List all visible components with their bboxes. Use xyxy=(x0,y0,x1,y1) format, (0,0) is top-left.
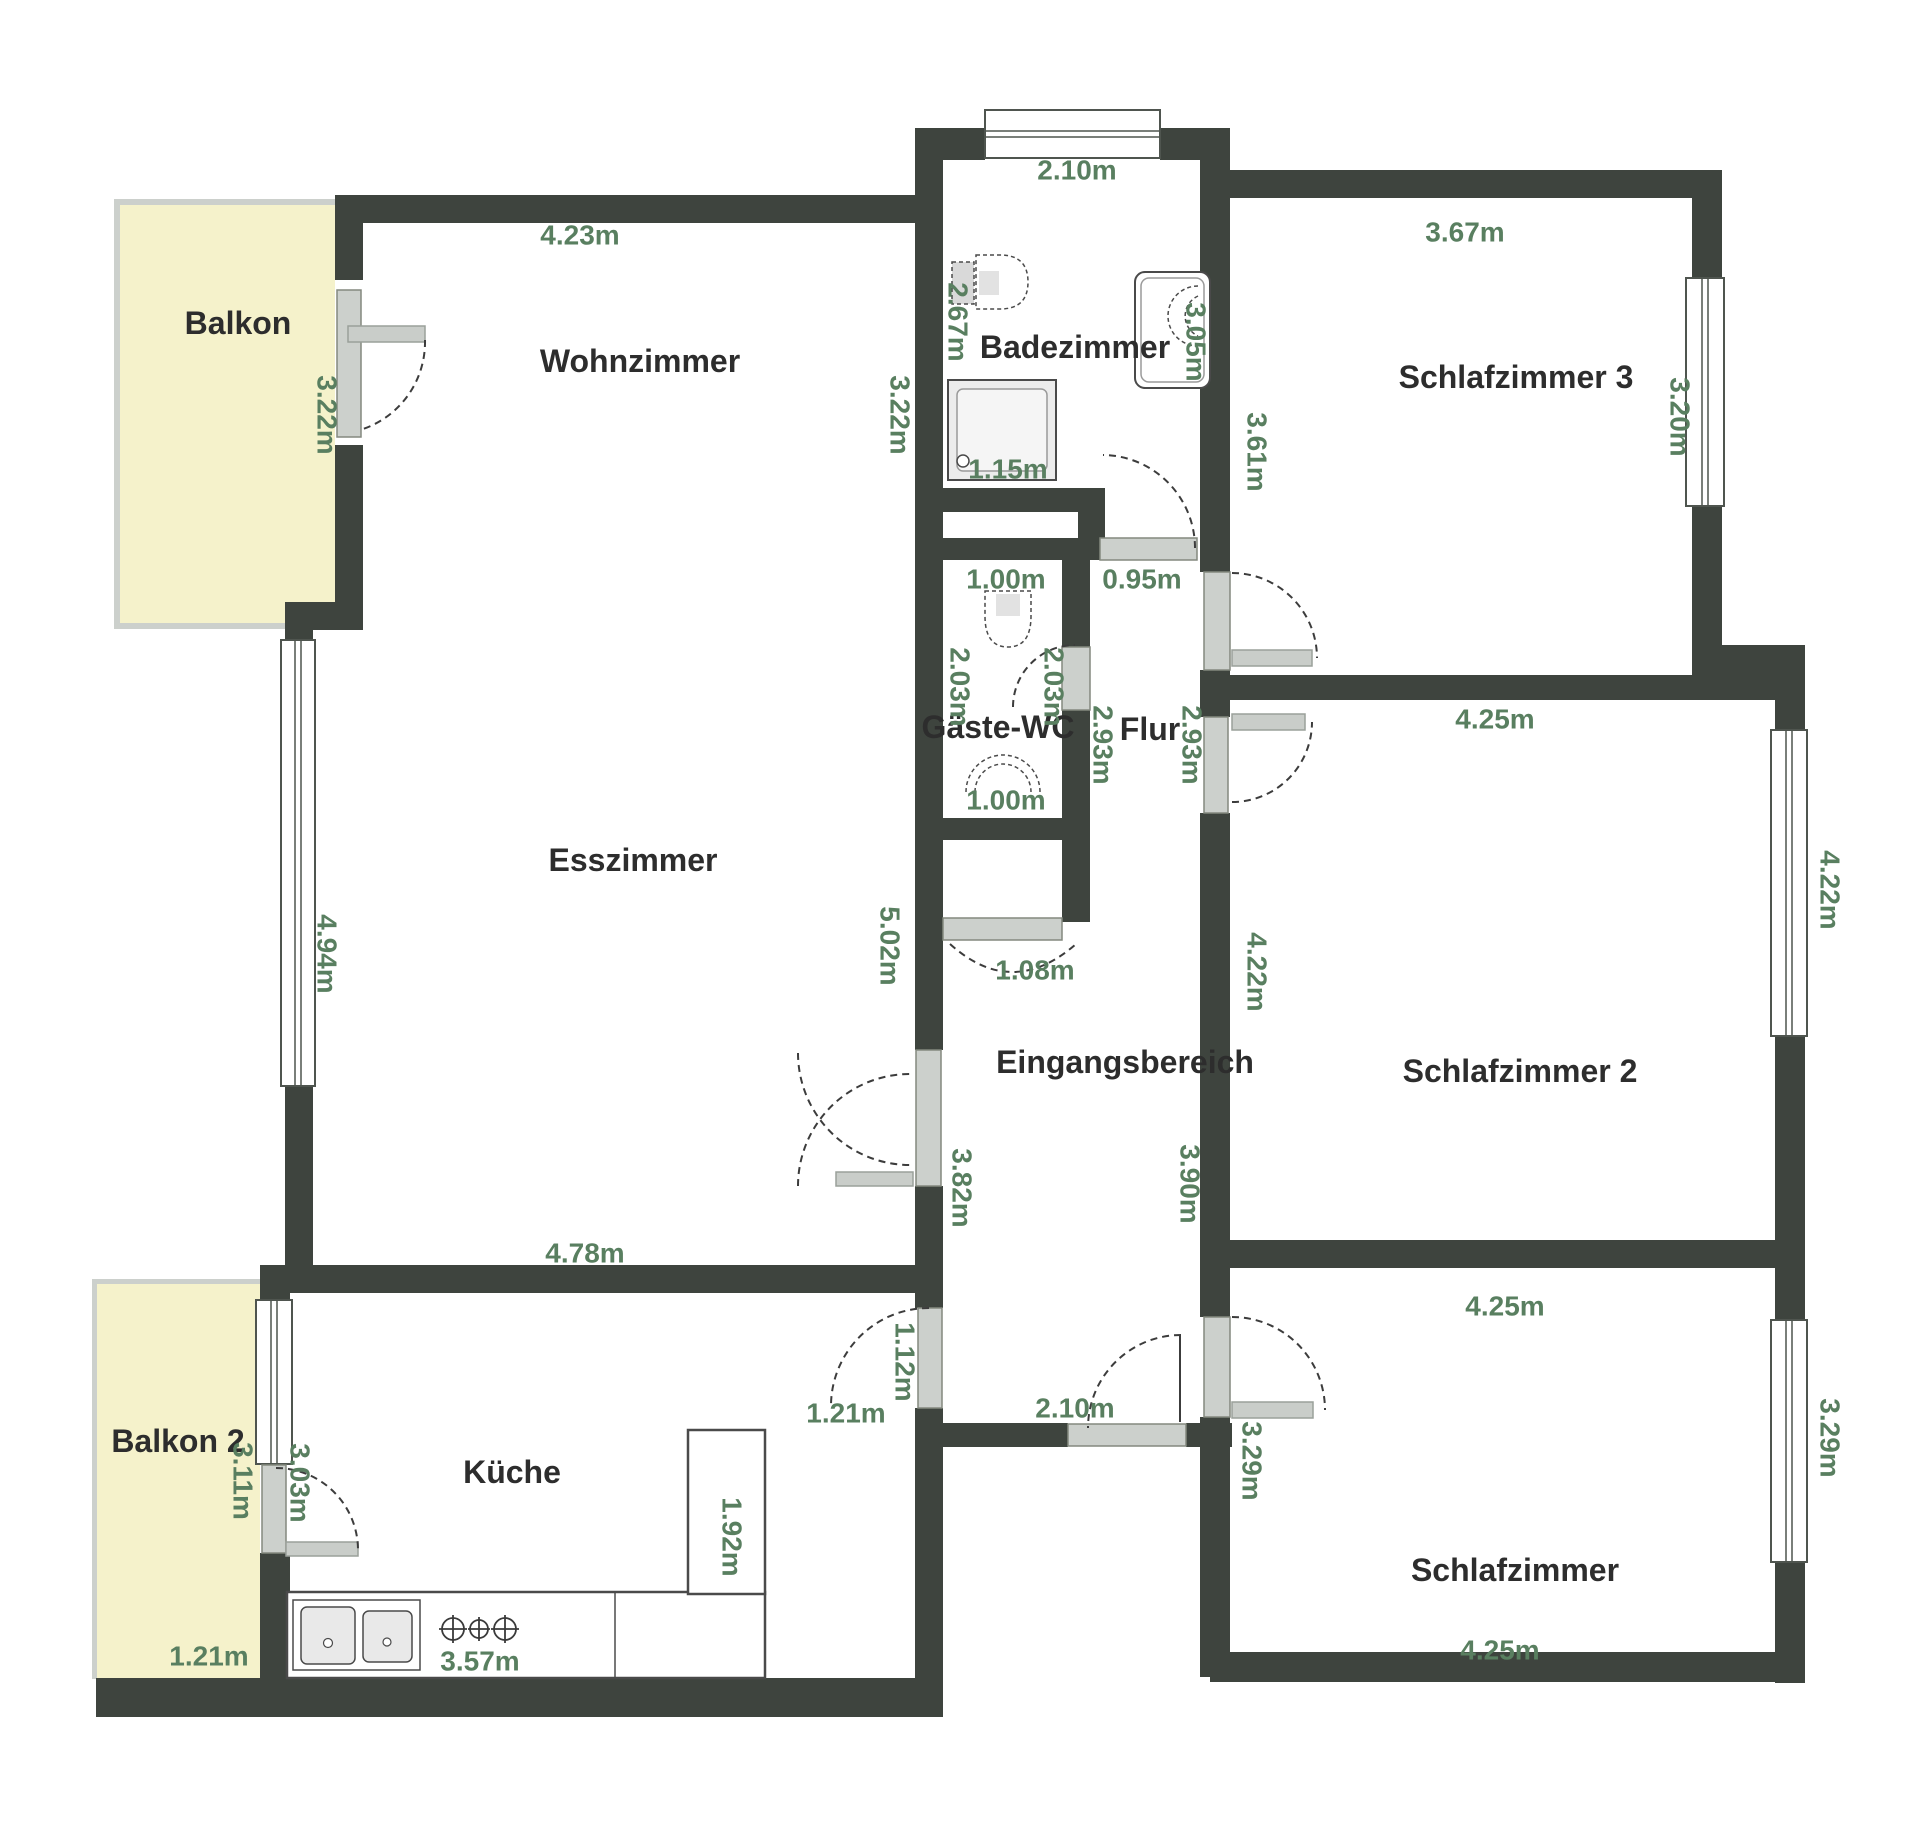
wall xyxy=(1775,1030,1805,1325)
door-leaf-esszimmer xyxy=(836,1172,913,1186)
wall xyxy=(915,1408,943,1717)
dim-label: 3.57m xyxy=(440,1646,519,1677)
dim-label: 1.00m xyxy=(966,785,1045,816)
dim-label: 4.23m xyxy=(540,220,619,251)
door-panel-badezimmer xyxy=(1100,538,1197,560)
floorplan-svg: BalkonWohnzimmerBadezimmerSchlafzimmer 3… xyxy=(0,0,1919,1828)
door-leaf-balkon2 xyxy=(286,1542,358,1556)
dim-label: 3.05m xyxy=(1181,302,1212,381)
floorplan: BalkonWohnzimmerBadezimmerSchlafzimmer 3… xyxy=(0,0,1919,1828)
wall xyxy=(933,818,1090,840)
dim-label: 1.92m xyxy=(717,1497,748,1576)
door-leaf-schlafzimmer2 xyxy=(1232,714,1305,730)
dim-label: 2.67m xyxy=(943,282,974,361)
wall xyxy=(260,1265,943,1293)
room-label-badezimmer: Badezimmer xyxy=(980,329,1170,365)
balcony-1 xyxy=(118,204,335,628)
room-label-balkon: Balkon xyxy=(185,305,292,341)
wall xyxy=(1230,1240,1805,1268)
balcony-1-railing-top xyxy=(114,199,339,205)
wall xyxy=(943,1423,1068,1447)
room-label-flur: Flur xyxy=(1120,711,1180,747)
room-label-balkon-2: Balkon 2 xyxy=(111,1423,244,1459)
door-panel-closet xyxy=(943,918,1062,940)
door-arc-esszimmer-upper xyxy=(798,1053,910,1165)
dim-label: 4.25m xyxy=(1455,704,1534,735)
dim-label: 3.22m xyxy=(312,375,343,454)
dim-label: 3.22m xyxy=(885,375,916,454)
room-label-esszimmer: Esszimmer xyxy=(549,842,718,878)
dim-label: 0.95m xyxy=(1102,564,1181,595)
balcony-1-railing-bottom xyxy=(114,623,289,629)
door-arc-schlafzimmer3 xyxy=(1232,573,1317,658)
dim-label: 1.21m xyxy=(806,1398,885,1429)
door-panel-schlafzimmer xyxy=(1204,1317,1230,1417)
door-arc-schlafzimmer xyxy=(1232,1317,1325,1410)
door-arc-balkon xyxy=(360,340,425,430)
window-schlafzimmer xyxy=(1771,1320,1807,1562)
dim-label: 3.61m xyxy=(1242,412,1273,491)
wall xyxy=(1062,560,1090,647)
dim-label: 1.21m xyxy=(169,1641,248,1672)
dim-label: 2.93m xyxy=(1177,705,1208,784)
dim-label: 3.90m xyxy=(1175,1144,1206,1223)
dim-label: 3.20m xyxy=(1665,377,1696,456)
window-esszimmer xyxy=(281,640,315,1086)
sink-drain-left xyxy=(324,1639,333,1648)
dim-label: 1.08m xyxy=(995,955,1074,986)
dim-label: 3.11m xyxy=(228,1442,259,1520)
wall xyxy=(1186,1423,1232,1447)
wall xyxy=(1230,675,1805,700)
dim-label: 3.29m xyxy=(1237,1421,1268,1500)
door-panel-schlafzimmer3 xyxy=(1204,572,1230,670)
wall xyxy=(285,602,363,630)
room-label-k-che: Küche xyxy=(463,1454,561,1490)
door-arc-esszimmer-lower xyxy=(798,1074,910,1186)
dim-label: 5.02m xyxy=(875,906,906,985)
wall xyxy=(1225,170,1722,198)
dim-label: 1.15m xyxy=(968,454,1047,485)
wall xyxy=(285,1080,313,1290)
dim-label: 4.25m xyxy=(1465,1291,1544,1322)
door-leaf-schlafzimmer3 xyxy=(1232,650,1312,666)
door-leaf-schlafzimmer xyxy=(1232,1402,1313,1418)
window-schlafzimmer2 xyxy=(1771,730,1807,1036)
dim-label: 3.82m xyxy=(947,1148,978,1227)
wall xyxy=(1200,1417,1230,1677)
shower-drain xyxy=(957,455,969,467)
wall xyxy=(933,488,1078,512)
wall xyxy=(335,195,363,280)
balcony-2-railing-left xyxy=(92,1279,97,1679)
door-panel-esszimmer-double xyxy=(916,1050,941,1186)
dim-label: 2.10m xyxy=(1037,155,1116,186)
dim-label: 1.12m xyxy=(890,1322,921,1401)
window-kueche xyxy=(256,1300,292,1464)
dim-label: 3.67m xyxy=(1425,217,1504,248)
room-label-wohnzimmer: Wohnzimmer xyxy=(540,343,740,379)
dim-label: 4.94m xyxy=(312,914,343,993)
dim-label: 1.00m xyxy=(966,564,1045,595)
wc-toilet-tank xyxy=(996,594,1020,616)
door-arc-schlafzimmer2 xyxy=(1232,722,1312,802)
sink-basin-left xyxy=(301,1607,355,1664)
dim-label: 2.03m xyxy=(1039,647,1070,726)
dim-label: 4.78m xyxy=(545,1238,624,1269)
window-badezimmer xyxy=(985,110,1160,158)
dim-label: 4.25m xyxy=(1460,1635,1539,1666)
room-label-schlafzimmer-3: Schlafzimmer 3 xyxy=(1399,359,1634,395)
balcony-1-railing-left xyxy=(114,199,120,628)
wall xyxy=(1692,170,1722,285)
toilet-seat xyxy=(979,271,999,295)
wall xyxy=(260,1553,290,1680)
dim-label: 4.22m xyxy=(1242,932,1273,1011)
wall xyxy=(1062,840,1090,922)
sink-drain-right xyxy=(383,1638,391,1646)
door-arc-badezimmer xyxy=(1103,455,1195,548)
wall xyxy=(915,128,943,1050)
dim-label: 2.10m xyxy=(1035,1393,1114,1424)
dim-label: 2.93m xyxy=(1088,705,1119,784)
dim-label: 3.29m xyxy=(1815,1398,1846,1477)
wall xyxy=(96,1678,943,1717)
dim-label: 3.03m xyxy=(285,1443,316,1522)
balcony-2-railing-top xyxy=(92,1279,260,1284)
dim-label: 2.03m xyxy=(945,647,976,726)
dim-label: 4.22m xyxy=(1815,850,1846,929)
door-panel-kueche xyxy=(918,1308,942,1408)
wall xyxy=(335,195,943,223)
room-label-schlafzimmer-2: Schlafzimmer 2 xyxy=(1403,1053,1638,1089)
room-label-schlafzimmer: Schlafzimmer xyxy=(1411,1552,1619,1588)
door-panel-entrance xyxy=(1068,1424,1186,1446)
door-panel-balkon2 xyxy=(262,1465,286,1553)
door-leaf-balkon xyxy=(348,326,425,342)
wall xyxy=(933,538,1100,560)
sink-basin-right xyxy=(363,1611,412,1662)
room-label-eingangsbereich: Eingangsbereich xyxy=(996,1044,1254,1080)
